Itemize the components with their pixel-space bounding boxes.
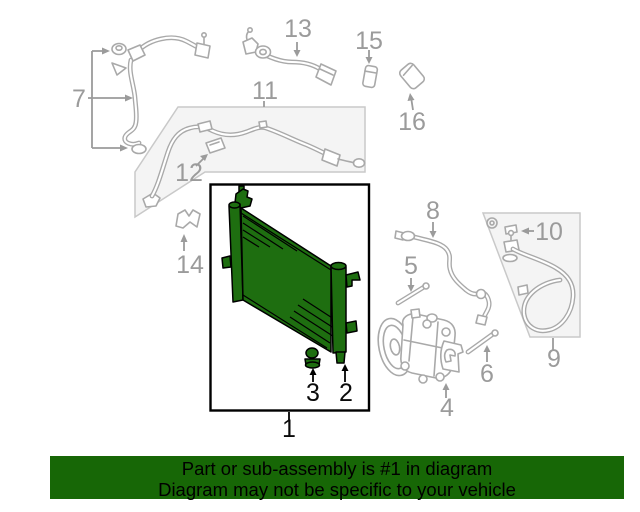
callout-2[interactable]: 2 bbox=[339, 379, 353, 407]
callout-1[interactable]: 1 bbox=[282, 415, 296, 443]
callout-10[interactable]: 10 bbox=[535, 218, 563, 246]
callout-11[interactable]: 11 bbox=[252, 77, 278, 105]
callout-13[interactable]: 13 bbox=[284, 15, 312, 43]
parts-diagram-page: 1 2 3 4 5 6 7 8 9 10 11 12 13 14 15 16 P… bbox=[0, 0, 640, 512]
callout-15[interactable]: 15 bbox=[355, 27, 383, 55]
notice-banner: Part or sub-assembly is #1 in diagram Di… bbox=[50, 456, 624, 499]
part-6-bolt-drawing bbox=[468, 330, 498, 362]
callout-7[interactable]: 7 bbox=[72, 85, 86, 113]
callout-5[interactable]: 5 bbox=[404, 252, 418, 280]
callout-12[interactable]: 12 bbox=[175, 159, 203, 187]
notice-line-2: Diagram may not be specific to your vehi… bbox=[50, 479, 624, 500]
part-15-valve-drawing bbox=[362, 50, 377, 88]
part-4-compressor-drawing bbox=[373, 309, 463, 398]
callout-3[interactable]: 3 bbox=[306, 379, 320, 407]
part-16-cap-drawing bbox=[398, 62, 426, 110]
callout-8[interactable]: 8 bbox=[426, 197, 440, 225]
callout-16[interactable]: 16 bbox=[398, 108, 426, 136]
part-5-bolt-drawing bbox=[398, 278, 429, 303]
callout-4[interactable]: 4 bbox=[440, 394, 454, 422]
parts-diagram: 1 2 3 4 5 6 7 8 9 10 11 12 13 14 15 16 bbox=[0, 0, 640, 512]
notice-line-1: Part or sub-assembly is #1 in diagram bbox=[50, 458, 624, 479]
callout-9[interactable]: 9 bbox=[547, 345, 561, 373]
callout-6[interactable]: 6 bbox=[480, 360, 494, 388]
part-14-bracket-drawing bbox=[176, 210, 200, 251]
callout-14[interactable]: 14 bbox=[176, 251, 204, 279]
